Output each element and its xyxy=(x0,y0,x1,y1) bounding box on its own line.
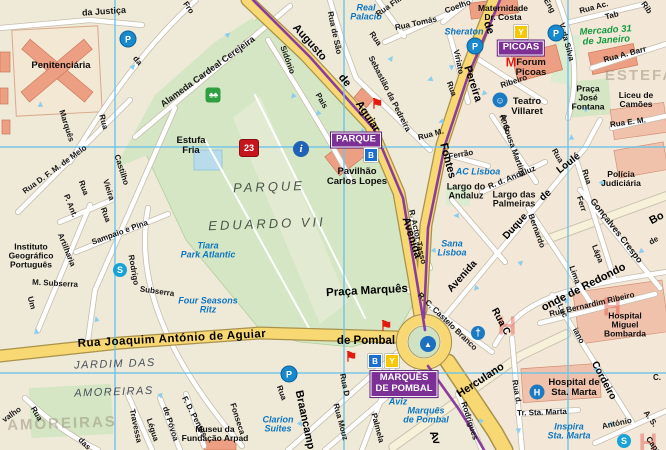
metro-line-B-icon: B xyxy=(364,148,378,162)
poi-label: Penitenciária xyxy=(31,61,90,71)
metro-station-label: PARQUE xyxy=(331,133,381,148)
theatre-icon: ☺ xyxy=(493,93,508,108)
map-grid-line xyxy=(114,0,116,450)
parking-icon: P xyxy=(548,25,565,42)
oneway-arrow-icon: ► xyxy=(514,426,525,436)
metro-entrance-icon: M xyxy=(506,55,517,70)
hotel-label: Aviz xyxy=(389,397,408,406)
hotel-label: AC Lisboa xyxy=(456,167,501,176)
oneway-arrow-icon: ► xyxy=(452,211,461,221)
sight-flag-icon: ⚑ xyxy=(371,96,384,113)
hotel-label: Sana Lisboa xyxy=(437,240,466,259)
parking-icon: P xyxy=(281,366,298,383)
poi-label: Instituto Geográfico Português xyxy=(9,243,54,270)
route-shield: 23 xyxy=(239,139,259,157)
poi-label: de Pombal xyxy=(337,335,395,347)
poi-label: Polícia Judiciária xyxy=(601,170,641,188)
metro-line-Y-icon: Y xyxy=(385,354,399,368)
poi-label: Museu da Fundação Arpad xyxy=(182,425,249,443)
poi-label: Hospital de Sta. Marta xyxy=(548,378,599,398)
poi-label: Hospital Miguel Bombarda xyxy=(604,312,646,339)
parking-icon: P xyxy=(467,38,484,55)
poi-label: Estufa Fria xyxy=(176,136,205,156)
market-label: Mercado 31 de Janeiro xyxy=(579,24,633,48)
poi-label: Teatro Villaret xyxy=(511,97,543,117)
oneway-arrow-icon: ► xyxy=(566,132,577,142)
monument-icon: ▲ xyxy=(420,336,436,352)
metro-line-Y-icon: Y xyxy=(514,25,528,39)
city-map: da JustiçaPenitenciáriaFrodaRuaMarquêsAl… xyxy=(0,0,666,450)
map-grid-line xyxy=(0,372,666,374)
poi-label: Pavilhão Carlos Lopes xyxy=(327,167,387,187)
metro-line-B-icon: B xyxy=(368,354,382,368)
sight-flag-icon: ⚑ xyxy=(380,318,393,335)
garden-icon: ♣♣ xyxy=(206,88,221,103)
street-label: Largo das Palmeiras xyxy=(492,191,535,210)
hotel-label: Four Seasons Ritz xyxy=(178,297,238,316)
hotel-label: Marquês de Pombal xyxy=(403,407,449,426)
hotel-label: Clarion Suites xyxy=(262,416,293,435)
church-icon: † xyxy=(471,326,485,340)
s-badge-icon: S xyxy=(113,263,127,277)
parking-icon: P xyxy=(120,31,137,48)
oneway-arrow-icon: ► xyxy=(31,327,41,336)
park-name-label: PARQUE xyxy=(233,179,305,195)
hospital-icon: H xyxy=(530,385,545,400)
district-label: ESTEFA xyxy=(605,68,666,84)
poi-label: Maternidade Dr. Costa xyxy=(478,4,528,22)
oneway-arrow-icon: ► xyxy=(35,100,45,109)
info-icon: i xyxy=(293,141,309,157)
poi-label: Praça José Fontana xyxy=(571,85,604,112)
hotel-label: Tiara Park Atlantic xyxy=(181,242,236,261)
poi-label: Liceu de Camões xyxy=(619,91,653,109)
street-label: Largo do Andaluz xyxy=(447,183,486,202)
metro-station-label: MARQUÊS DE POMBAL xyxy=(371,371,438,397)
hotel-label: Inspira Sta. Marta xyxy=(547,423,590,442)
street-label: Tr. Sta. Marta xyxy=(517,408,567,418)
sight-flag-icon: ⚑ xyxy=(345,349,358,366)
s-badge-icon: S xyxy=(617,434,631,448)
street-label: C. xyxy=(653,374,661,382)
metro-station-label: PICOAS xyxy=(498,41,544,56)
hotel-label: Sheraton xyxy=(444,27,483,36)
